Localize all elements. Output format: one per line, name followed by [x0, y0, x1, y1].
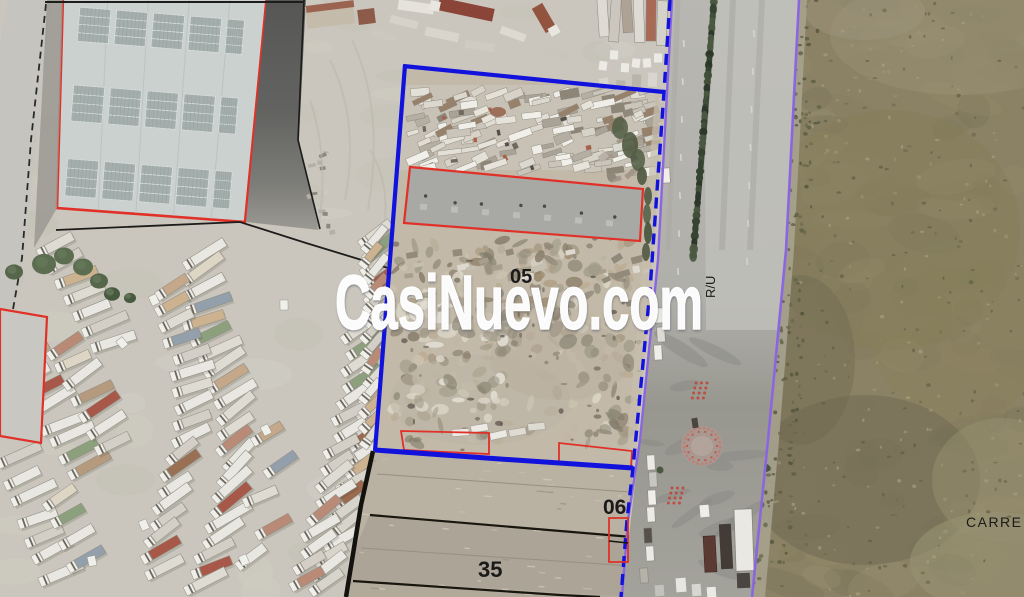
svg-text:35: 35 [478, 557, 502, 582]
svg-text:CARRE: CARRE [966, 514, 1023, 530]
svg-text:CasiNuevo.com: CasiNuevo.com [335, 260, 703, 346]
svg-text:06: 06 [603, 496, 626, 519]
svg-text:R/U: R/U [703, 276, 718, 298]
